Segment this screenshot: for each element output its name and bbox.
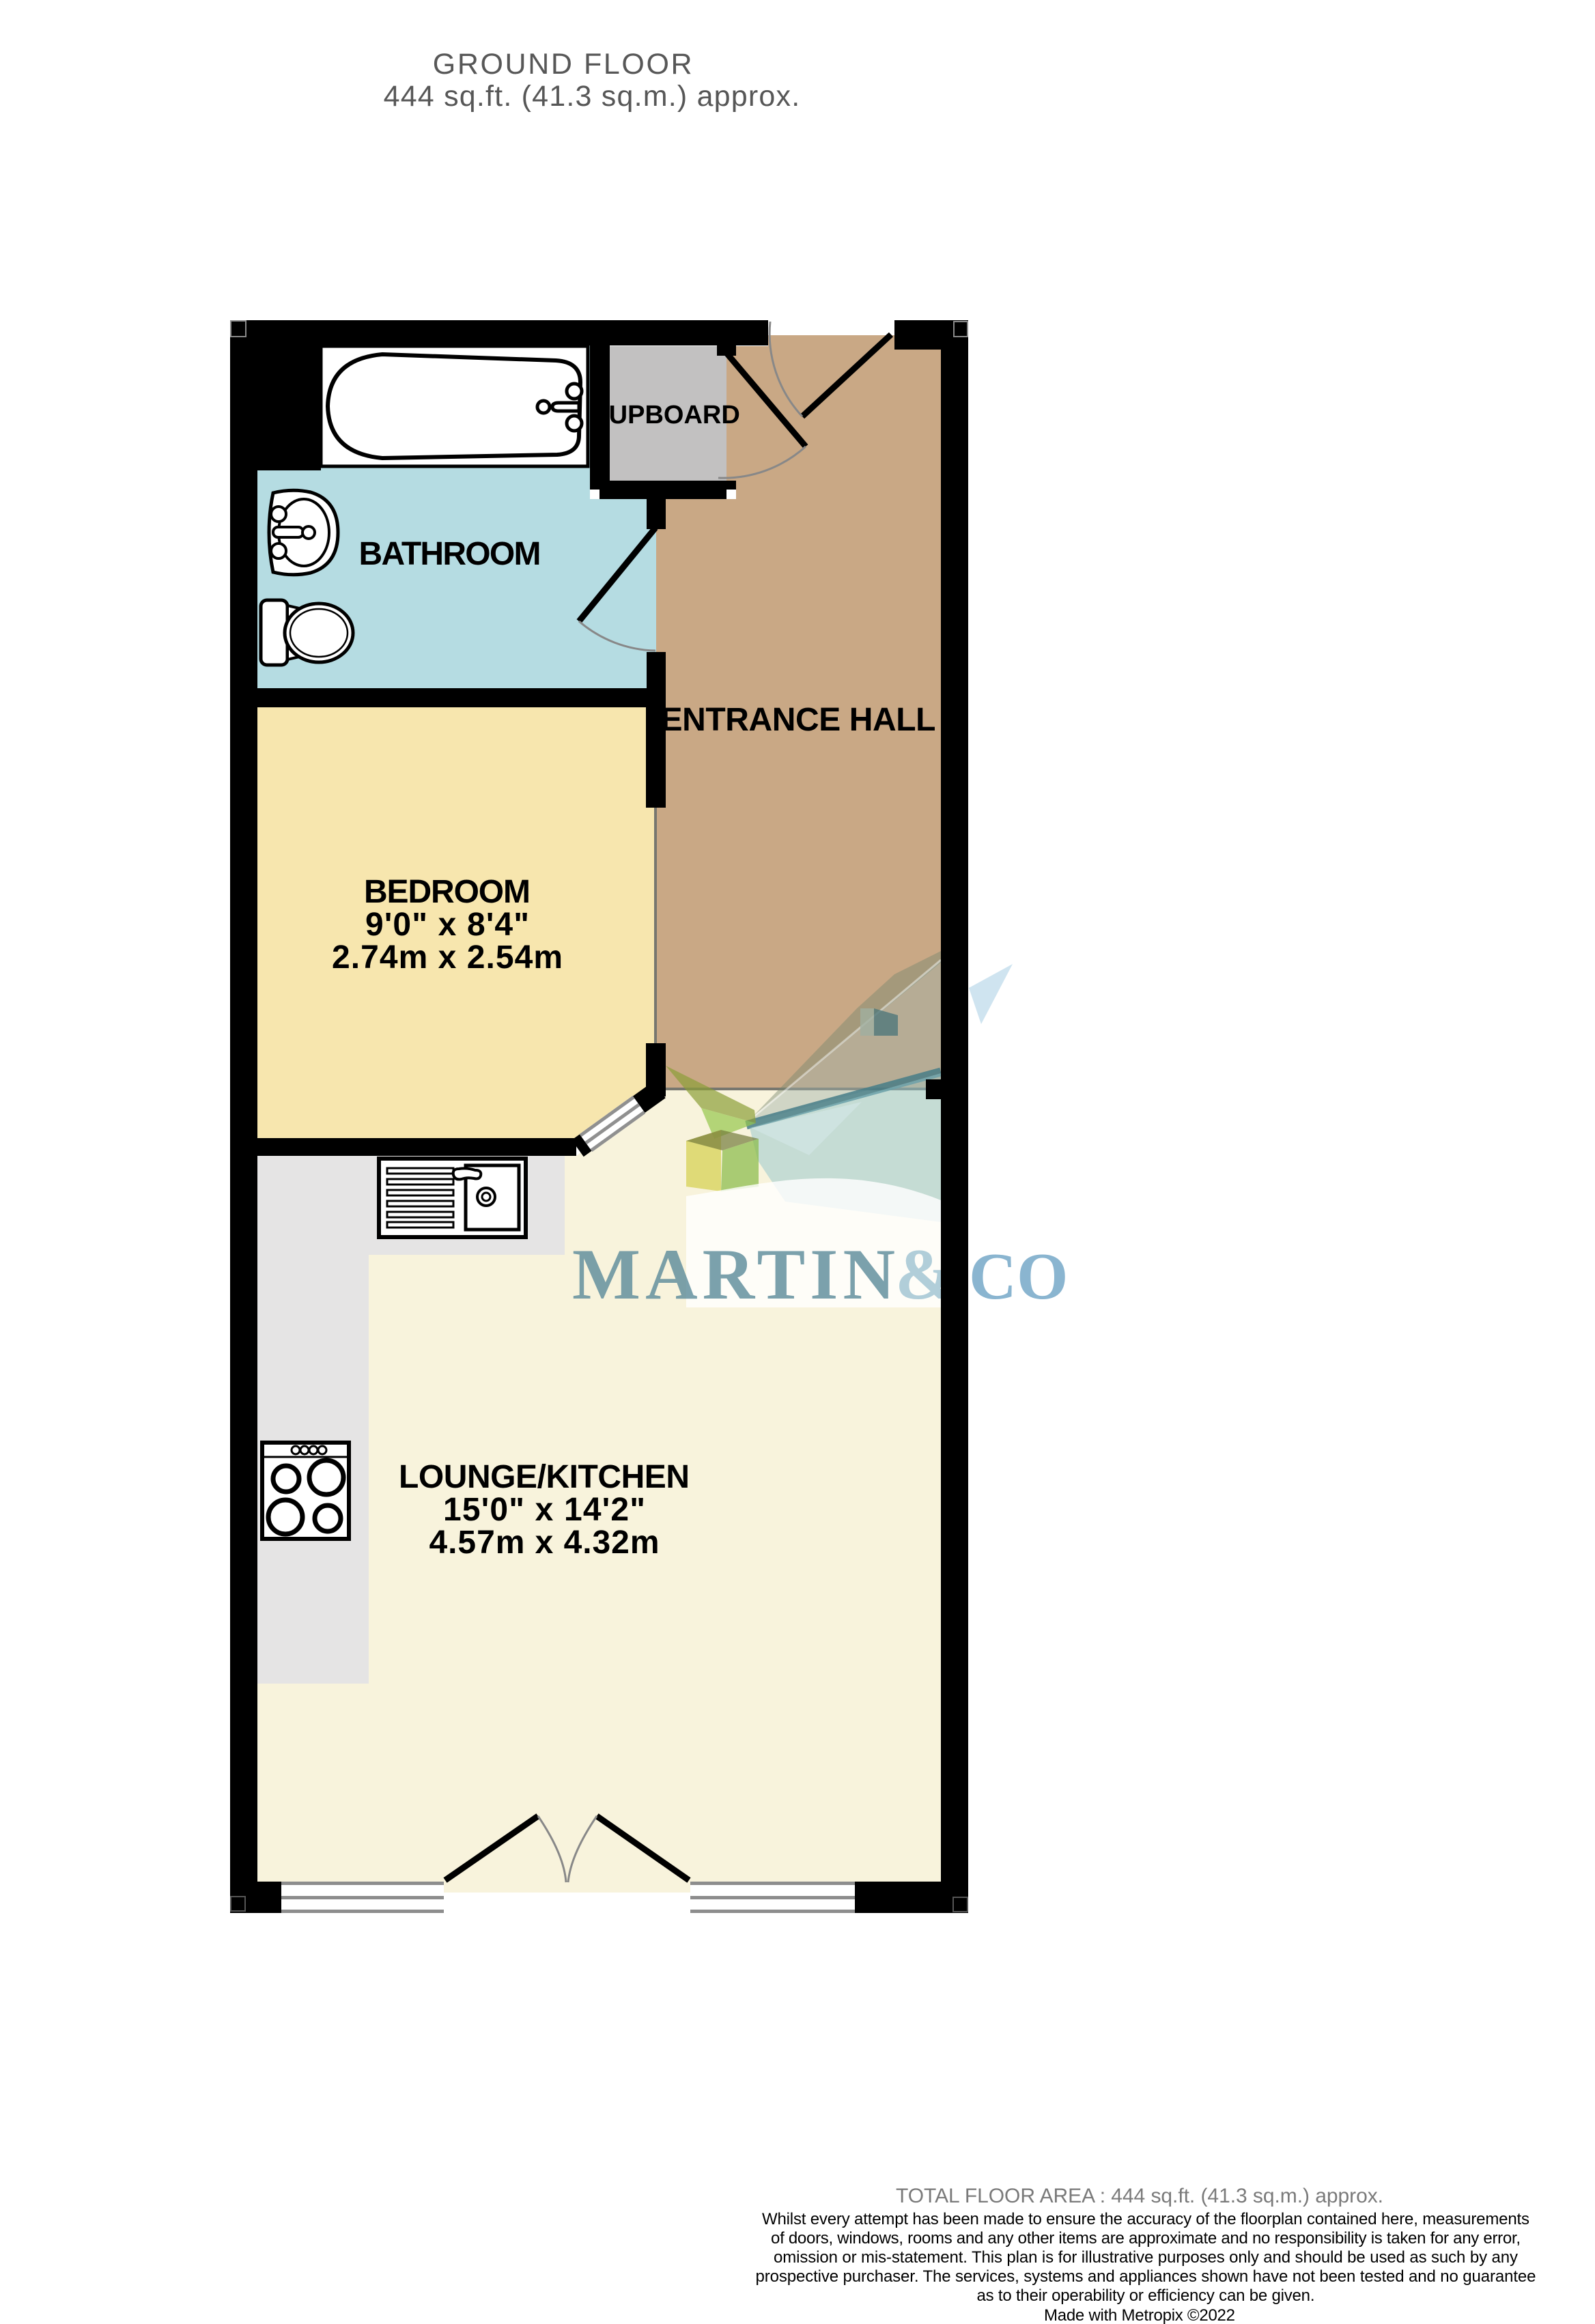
svg-text:as to their operability or eff: as to their operability or efficiency ca… <box>977 2286 1315 2305</box>
svg-text:ENTRANCE HALL: ENTRANCE HALL <box>661 702 936 738</box>
svg-text:of doors, windows, rooms and a: of doors, windows, rooms and any other i… <box>771 2229 1521 2248</box>
svg-text:BEDROOM: BEDROOM <box>364 874 531 910</box>
svg-text:444 sq.ft. (41.3 sq.m.) approx: 444 sq.ft. (41.3 sq.m.) approx. <box>384 80 801 113</box>
svg-text:9'0" x 8'4": 9'0" x 8'4" <box>365 907 529 943</box>
svg-text:2.74m x 2.54m: 2.74m x 2.54m <box>332 939 563 976</box>
svg-text:Made with Metropix ©2022: Made with Metropix ©2022 <box>1044 2306 1235 2324</box>
svg-text:4.57m x 4.32m: 4.57m x 4.32m <box>429 1525 660 1561</box>
svg-text:GROUND FLOOR: GROUND FLOOR <box>433 48 694 81</box>
svg-text:TOTAL FLOOR AREA : 444 sq.ft.: TOTAL FLOOR AREA : 444 sq.ft. (41.3 sq.m… <box>896 2185 1383 2207</box>
svg-text:Whilst every attempt has been: Whilst every attempt has been made to en… <box>762 2210 1529 2228</box>
svg-text:omission or mis-statement. Thi: omission or mis-statement. This plan is … <box>774 2248 1518 2267</box>
svg-text:15'0" x 14'2": 15'0" x 14'2" <box>443 1492 645 1528</box>
svg-text:LOUNGE/KITCHEN: LOUNGE/KITCHEN <box>399 1459 690 1495</box>
svg-text:CO: CO <box>969 1240 1069 1313</box>
svg-text:MARTIN: MARTIN <box>572 1234 895 1314</box>
svg-text:CUPBOARD: CUPBOARD <box>590 401 740 429</box>
svg-text:BATHROOM: BATHROOM <box>359 536 541 572</box>
svg-text:prospective purchaser. The ser: prospective purchaser. The services, sys… <box>756 2267 1536 2286</box>
